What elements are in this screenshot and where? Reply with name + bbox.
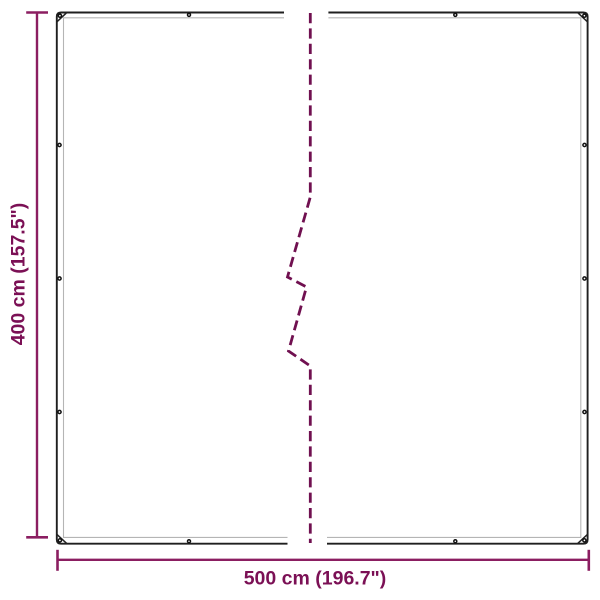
svg-text:500 cm (196.7"): 500 cm (196.7") bbox=[244, 567, 387, 589]
svg-text:400 cm (157.5"): 400 cm (157.5") bbox=[8, 203, 30, 346]
